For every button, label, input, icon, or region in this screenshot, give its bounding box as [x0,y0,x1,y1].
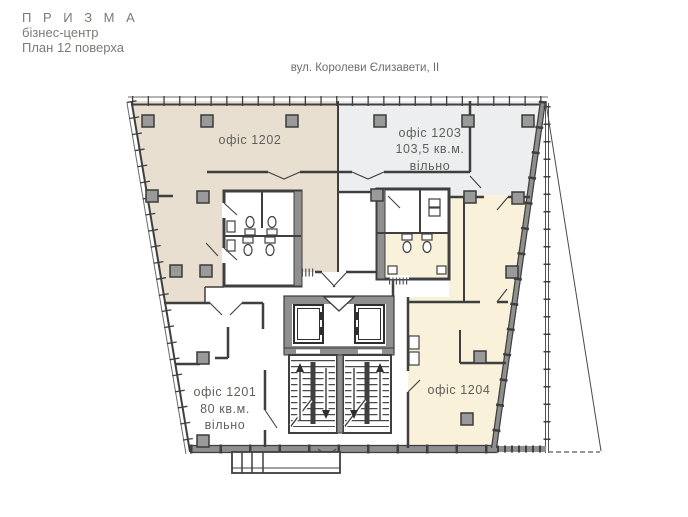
office-1202-label: офіс 1202 [219,133,282,147]
floor-plan-svg: офіс 1202 офіс 1203 103,5 кв.м. вільно о… [0,0,688,517]
column [200,265,212,277]
office-1201-area: 80 кв.м. [200,402,250,416]
office-1203-status: вільно [410,159,451,173]
elevator-car [294,305,324,343]
column [197,435,209,447]
column [374,115,386,127]
wc-core-right [377,189,449,281]
column [462,115,474,127]
column [286,115,298,127]
sink-icon [388,266,397,274]
office-1204-label: офіс 1204 [428,383,491,397]
column [512,192,524,204]
sink-icon [227,221,235,232]
sink-icon [227,240,235,251]
column [461,413,473,425]
street-label: вул. Королеви Єлизавети, II [240,62,490,74]
column [464,191,476,203]
wc-core-left [224,191,302,286]
brand-block: П Р И З М А бізнес-центр План 12 поверха [22,10,139,55]
column [522,115,534,127]
column [170,265,182,277]
column [371,189,383,201]
stairwells [289,355,391,433]
office-1203-label: офіс 1203 [399,126,462,140]
column [197,352,209,364]
office-1203-area: 103,5 кв.м. [395,142,464,156]
elevator-car [354,305,384,343]
office-1201-label: офіс 1201 [194,385,257,399]
plan-title: План 12 поверха [22,40,139,55]
column [142,115,154,127]
column [197,191,209,203]
brand-name: П Р И З М А [22,10,139,25]
column [474,351,486,363]
elevator-core [284,296,394,355]
office-1201-status: вільно [205,418,246,432]
sink-icon [437,266,446,274]
column [201,115,213,127]
sink-icon [429,199,440,207]
floor-plan-page: П Р И З М А бізнес-центр План 12 поверха… [0,0,688,517]
column [146,190,158,202]
entrance-balcony [232,452,340,473]
brand-type: бізнес-центр [22,25,139,40]
sink-icon [429,208,440,216]
column [506,266,518,278]
